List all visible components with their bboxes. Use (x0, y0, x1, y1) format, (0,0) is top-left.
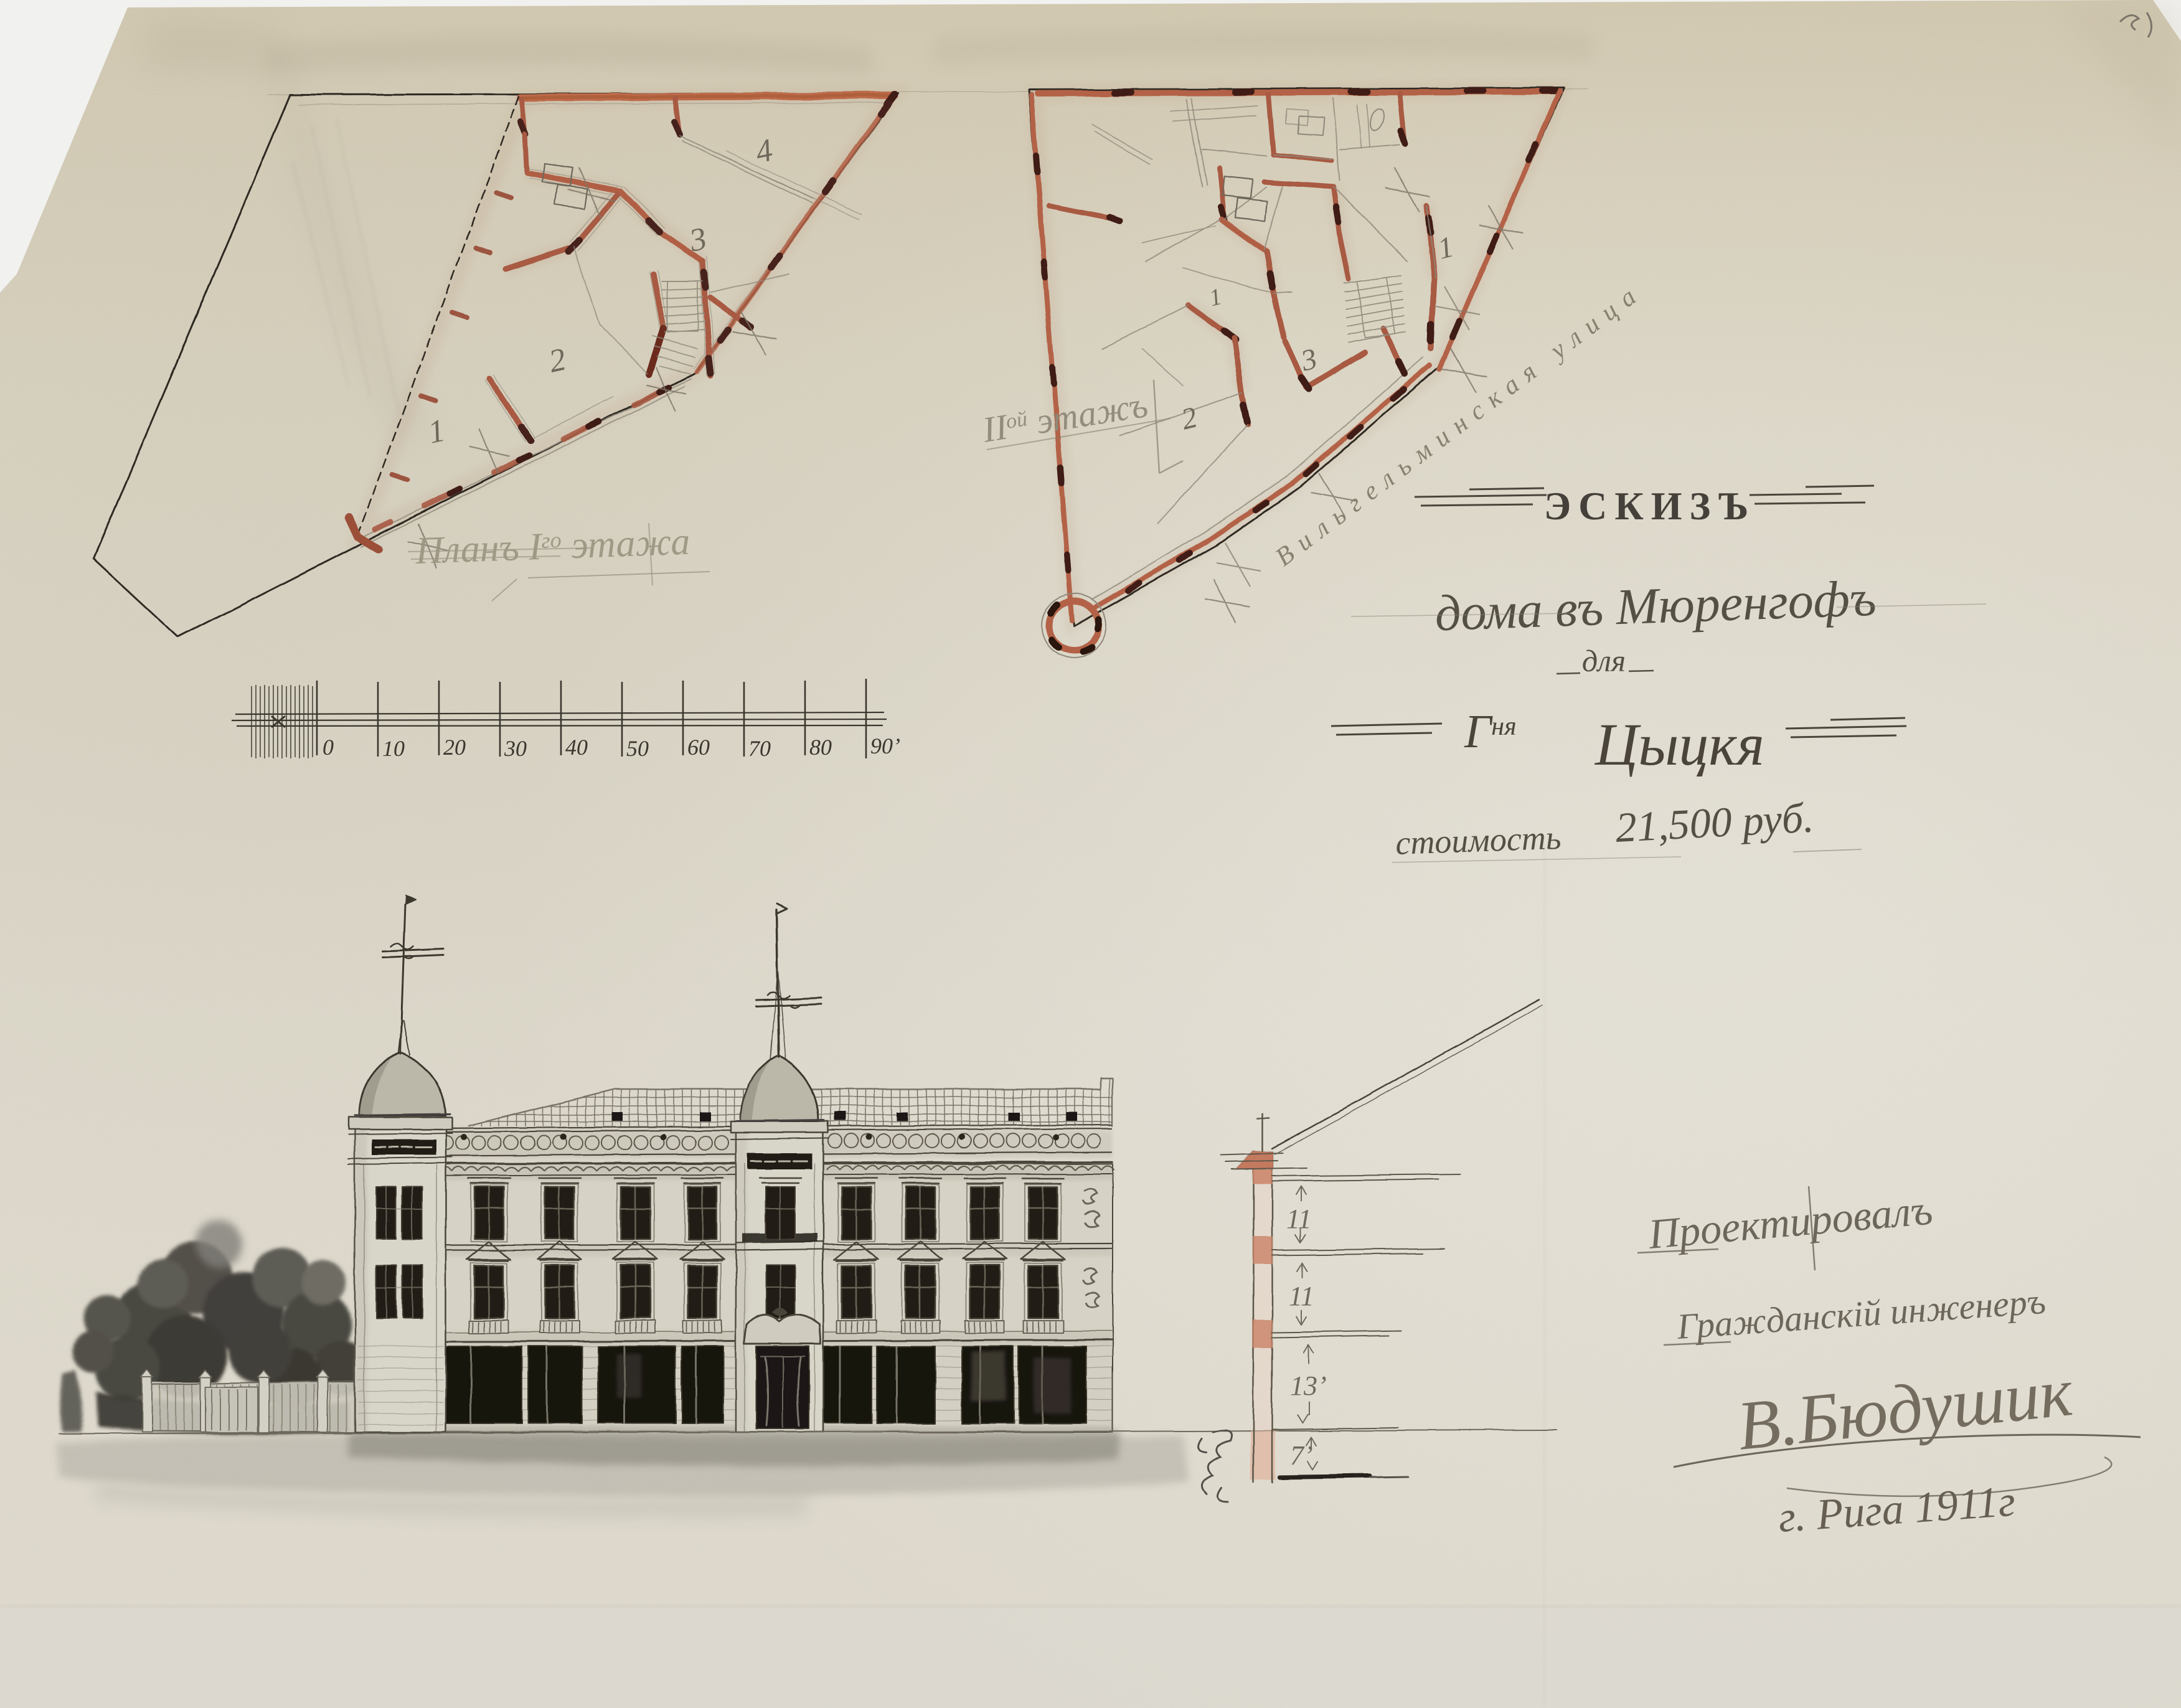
svg-text:10: 10 (382, 736, 405, 761)
svg-text:11: 11 (1289, 1281, 1314, 1311)
svg-text:Цыцкя: Цыцкя (1594, 711, 1764, 778)
svg-text:7’: 7’ (1290, 1440, 1313, 1471)
svg-text:40: 40 (565, 735, 588, 760)
svg-text:50: 50 (626, 736, 649, 761)
svg-text:11: 11 (1286, 1204, 1312, 1234)
svg-text:ЭСКИЗЪ: ЭСКИЗЪ (1544, 484, 1756, 528)
svg-text:80: 80 (809, 735, 832, 760)
svg-text:13’: 13’ (1290, 1371, 1327, 1401)
svg-text:30: 30 (504, 736, 527, 761)
svg-text:0: 0 (323, 735, 334, 760)
svg-text:20: 20 (443, 735, 466, 760)
svg-text:90’: 90’ (870, 734, 900, 758)
svg-text:стоимость: стоимость (1395, 819, 1562, 862)
svg-text:60: 60 (687, 735, 710, 760)
svg-text:для: для (1582, 643, 1626, 678)
svg-text:70: 70 (748, 736, 771, 761)
